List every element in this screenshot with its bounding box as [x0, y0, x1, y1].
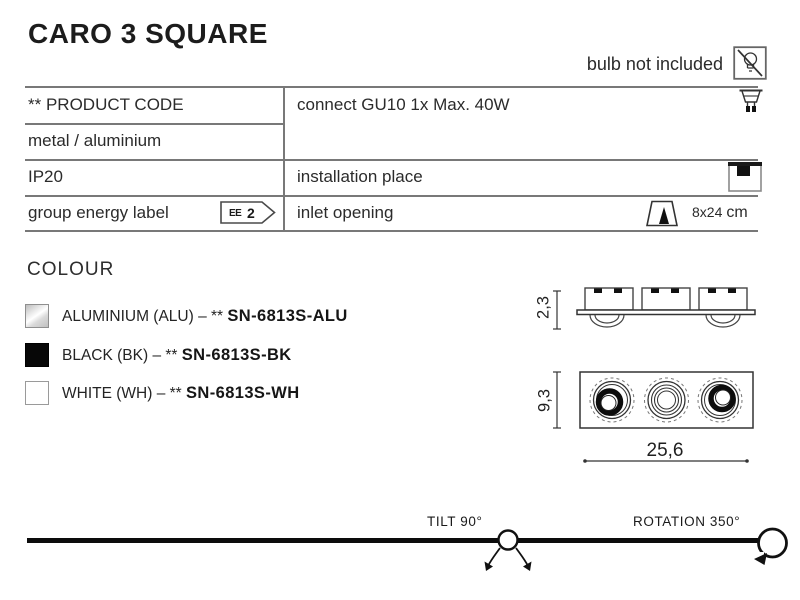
page-title: CARO 3 SQUARE — [28, 18, 268, 50]
rotation-icon — [751, 523, 797, 569]
inlet-size-value: 8x24 — [692, 204, 722, 220]
connection-value: connect GU10 1x Max. 40W — [297, 95, 510, 115]
colour-option-aluminium: ALUMINIUM (ALU) – ** SN-6813S-ALU — [25, 303, 348, 329]
colour-name: WHITE (WH) – ** — [62, 385, 186, 402]
rotation-label: ROTATION 350° — [633, 514, 740, 529]
product-code: SN-6813S-ALU — [227, 307, 347, 325]
gu10-socket-icon — [739, 89, 763, 115]
inlet-size-unit: cm — [726, 204, 747, 222]
table-rule-left-only — [25, 123, 283, 125]
energy-label: group energy label — [28, 203, 169, 223]
footer-baseline — [27, 538, 758, 543]
product-code: SN-6813S-BK — [182, 346, 292, 364]
tilt-label: TILT 90° — [427, 514, 482, 529]
inlet-size: 8x24 cm — [692, 204, 748, 222]
installation-place-label: installation place — [297, 167, 423, 187]
colour-option-black: BLACK (BK) – ** SN-6813S-BK — [25, 342, 292, 368]
energy-badge-prefix: EE — [229, 208, 241, 219]
table-top-rule — [25, 86, 758, 88]
table-bottom-rule — [25, 230, 758, 232]
table-rule — [25, 195, 758, 197]
ip-rating-value: IP20 — [28, 167, 63, 187]
table-column-divider — [283, 86, 285, 232]
product-code: SN-6813S-WH — [186, 384, 300, 402]
bulb-note-label: bulb not included — [587, 54, 723, 75]
white-swatch — [25, 381, 49, 405]
aluminium-swatch — [25, 304, 49, 328]
colour-name: BLACK (BK) – ** — [62, 347, 182, 364]
product-code-label: ** PRODUCT CODE — [28, 95, 184, 115]
bulb-not-included-icon — [733, 46, 767, 80]
tilt-icon — [470, 528, 550, 580]
energy-class-badge: EE 2 — [220, 201, 276, 224]
front-view-drawing — [550, 365, 762, 437]
colour-option-white: WHITE (WH) – ** SN-6813S-WH — [25, 380, 300, 406]
black-swatch — [25, 343, 49, 367]
width-dimension-line — [550, 437, 762, 467]
installation-place-icon — [728, 161, 762, 193]
inlet-opening-icon — [645, 200, 679, 227]
product-datasheet: CARO 3 SQUARE bulb not included ** PRODU… — [0, 0, 800, 600]
table-rule — [25, 159, 758, 161]
colour-heading: COLOUR — [27, 259, 114, 281]
energy-badge-value: 2 — [247, 205, 255, 221]
colour-name: ALUMINIUM (ALU) – ** — [62, 308, 227, 325]
inlet-opening-label: inlet opening — [297, 203, 393, 223]
material-value: metal / aluminium — [28, 131, 161, 151]
side-view-drawing — [550, 283, 762, 335]
